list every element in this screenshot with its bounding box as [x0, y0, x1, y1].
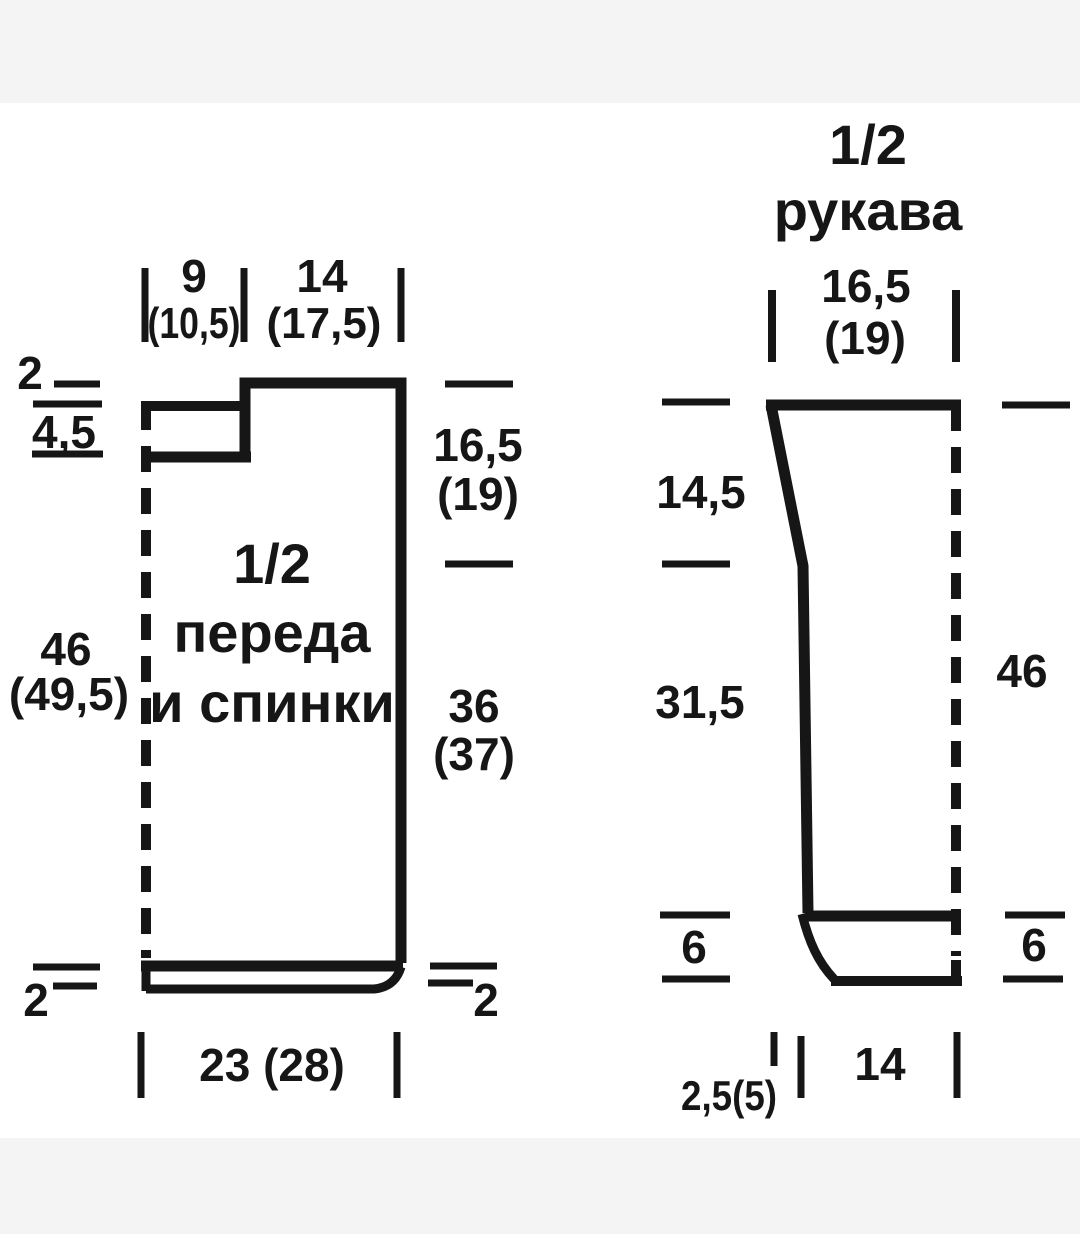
- schematic-canvas: 9 (10,5) 14 (17,5) 2 4,5 16,5 (19) 36 (3…: [0, 0, 1080, 1234]
- front-back-neck-drop-label: 2: [17, 347, 43, 399]
- sleeve-cuff-right-label: 6: [1021, 919, 1047, 971]
- front-back-title-line3: и спинки: [149, 671, 395, 734]
- front-back-neck-width-label: 14: [296, 250, 348, 302]
- front-back-shoulder-width-label: 9: [181, 250, 207, 302]
- sleeve-bottom-width-label: 14: [854, 1038, 906, 1090]
- sleeve-seam-label: 31,5: [655, 676, 745, 728]
- sleeve-vent-label: 2,5(5): [681, 1072, 777, 1119]
- front-back-armhole-label: 16,5: [433, 419, 523, 471]
- knitting-pattern-schematic: 9 (10,5) 14 (17,5) 2 4,5 16,5 (19) 36 (3…: [0, 0, 1080, 1234]
- front-back-hem-right-label: 2: [473, 974, 499, 1026]
- sleeve-title-line2: рукава: [774, 179, 963, 242]
- front-back-armhole-alt-label: (19): [437, 468, 519, 520]
- front-back-neckband-label: 4,5: [32, 406, 96, 458]
- sleeve-title-line1: 1/2: [829, 113, 907, 176]
- front-back-side-alt-label: (37): [433, 728, 515, 780]
- sleeve-top-width-alt-label: (19): [824, 312, 906, 364]
- front-back-shoulder-width-alt-label: (10,5): [148, 299, 241, 348]
- front-back-hem-left-label: 2: [23, 974, 49, 1026]
- front-back-title-line2: переда: [173, 601, 371, 664]
- front-back-title-line1: 1/2: [233, 532, 311, 595]
- sleeve-cuff-left-label: 6: [681, 921, 707, 973]
- sleeve-length-label: 46: [996, 645, 1047, 697]
- front-back-length-alt-label: (49,5): [9, 668, 129, 720]
- front-back-bottom-width-label: 23 (28): [199, 1039, 345, 1091]
- sleeve-top-width-label: 16,5: [821, 260, 911, 312]
- sleeve-cap-height-label: 14,5: [656, 466, 746, 518]
- front-back-side-label: 36: [448, 680, 499, 732]
- front-back-neck-width-alt-label: (17,5): [267, 299, 382, 348]
